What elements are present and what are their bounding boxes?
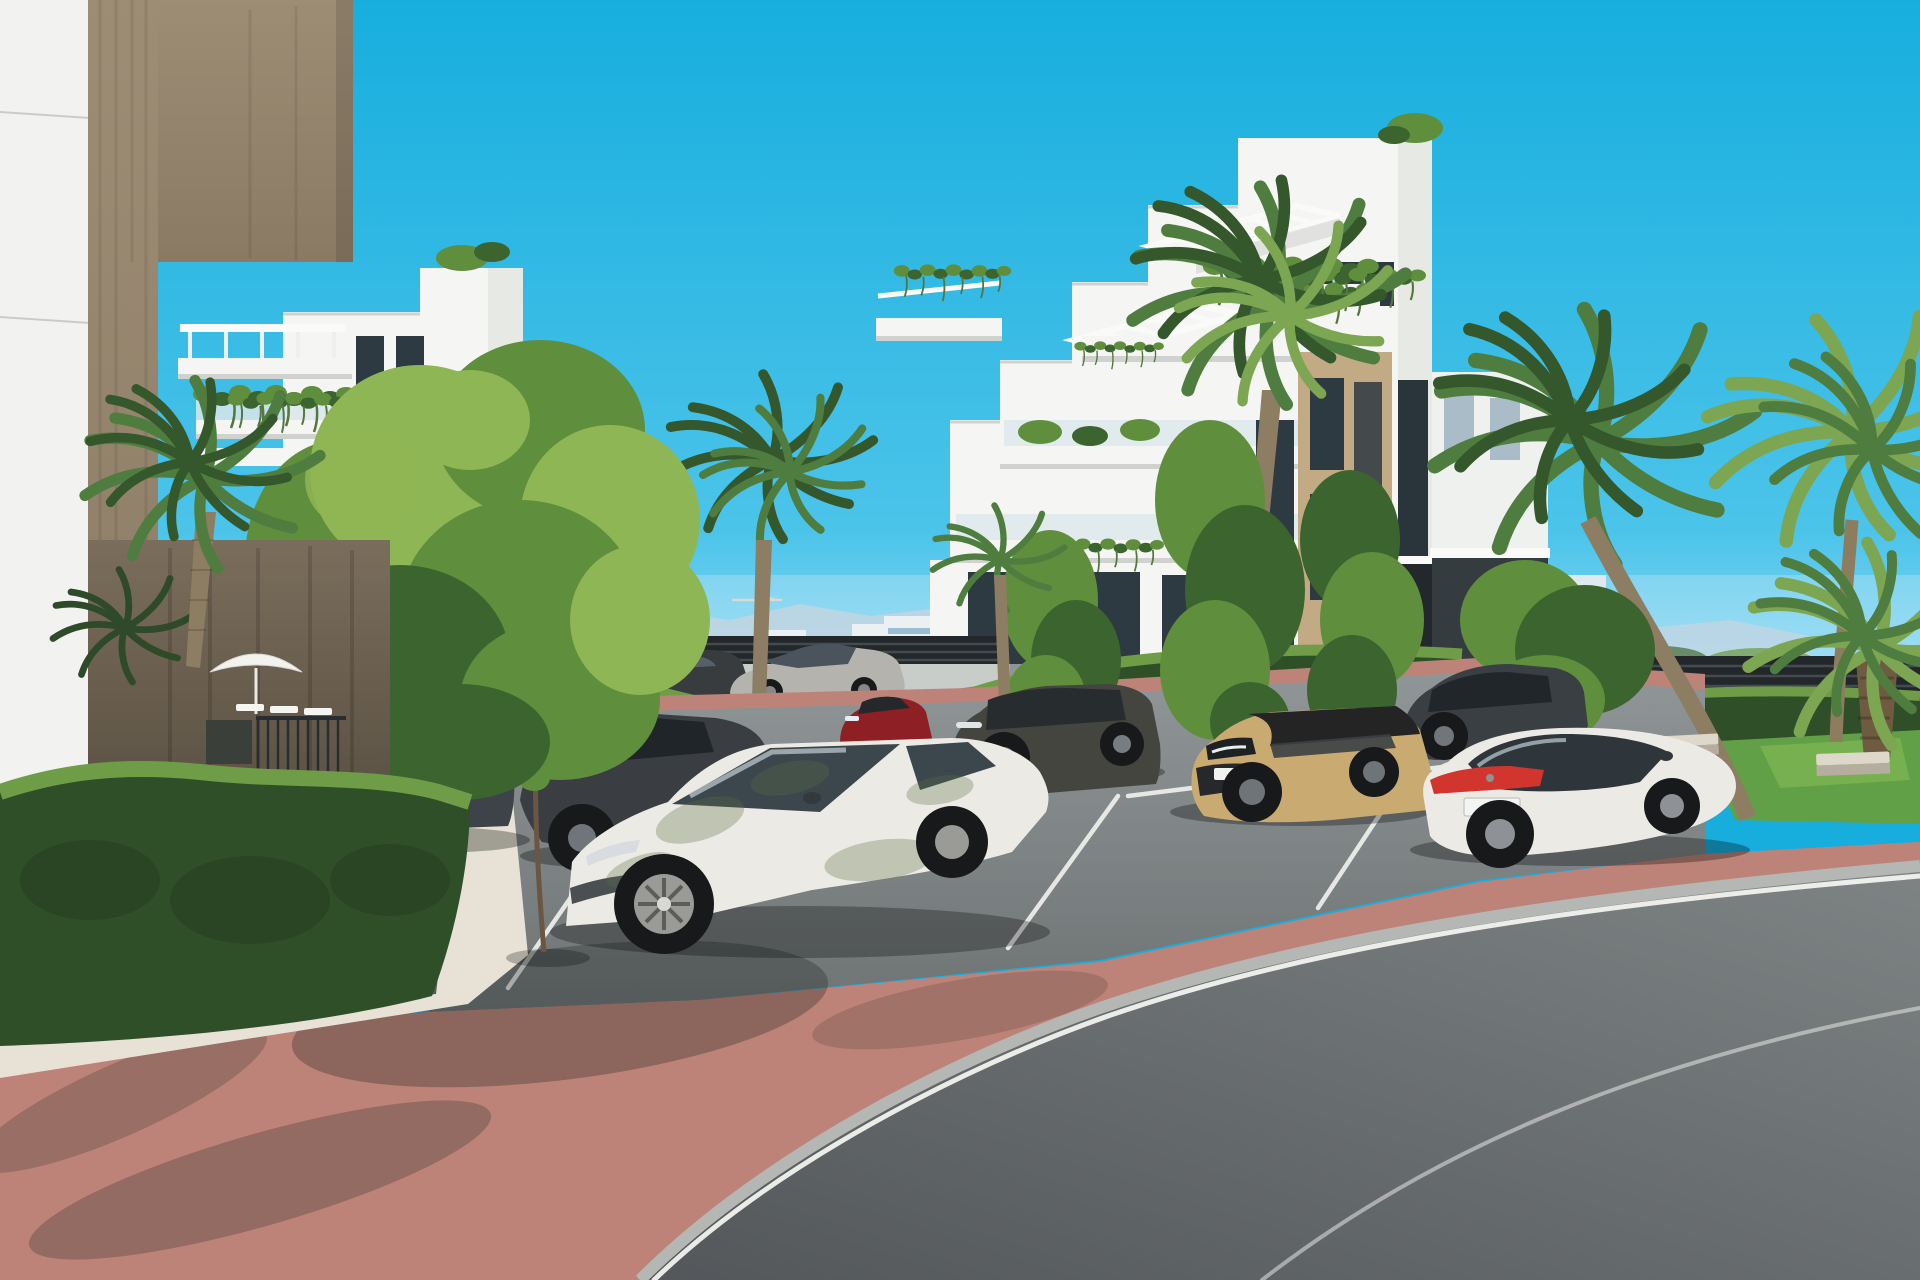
render-scene bbox=[0, 0, 1920, 1280]
planter-box bbox=[206, 720, 252, 764]
architectural-render bbox=[0, 0, 1920, 1280]
stone-bench-2 bbox=[1816, 751, 1890, 776]
